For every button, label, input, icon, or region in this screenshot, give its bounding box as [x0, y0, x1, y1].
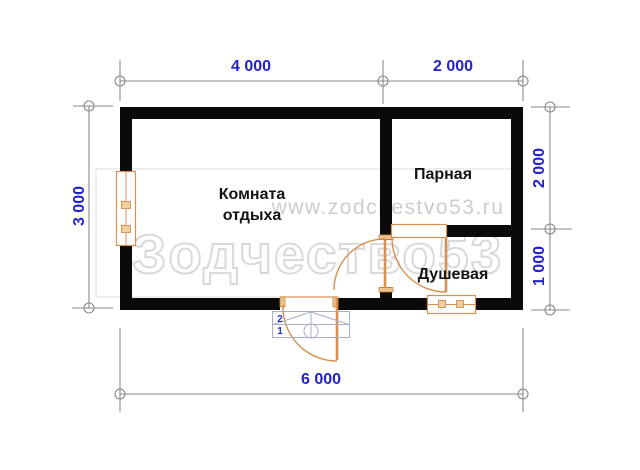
- room-label-rest: Комната отдыха: [192, 184, 312, 226]
- dim-top-2000: 2 000: [408, 58, 498, 76]
- window-bottom: [428, 296, 476, 314]
- dim-right-2000: 2 000: [531, 123, 549, 213]
- entrance-door: [280, 297, 338, 361]
- dim-right-1000: 1 000: [531, 221, 549, 311]
- dim-bottom-6000: 6 000: [276, 371, 366, 389]
- shower-door: [334, 235, 393, 292]
- room-label-steam: Парная: [388, 164, 498, 185]
- dim-top-4000: 4 000: [206, 58, 296, 76]
- room-label-shower: Душевая: [398, 264, 508, 285]
- porch-step-2: 2: [274, 315, 286, 325]
- dim-left-3000: 3 000: [71, 161, 89, 251]
- floor-plan-canvas: Зодчество53 www.zodchestvo53.ru: [0, 0, 640, 470]
- window-left: [117, 172, 136, 246]
- porch-step-1: 1: [274, 327, 286, 337]
